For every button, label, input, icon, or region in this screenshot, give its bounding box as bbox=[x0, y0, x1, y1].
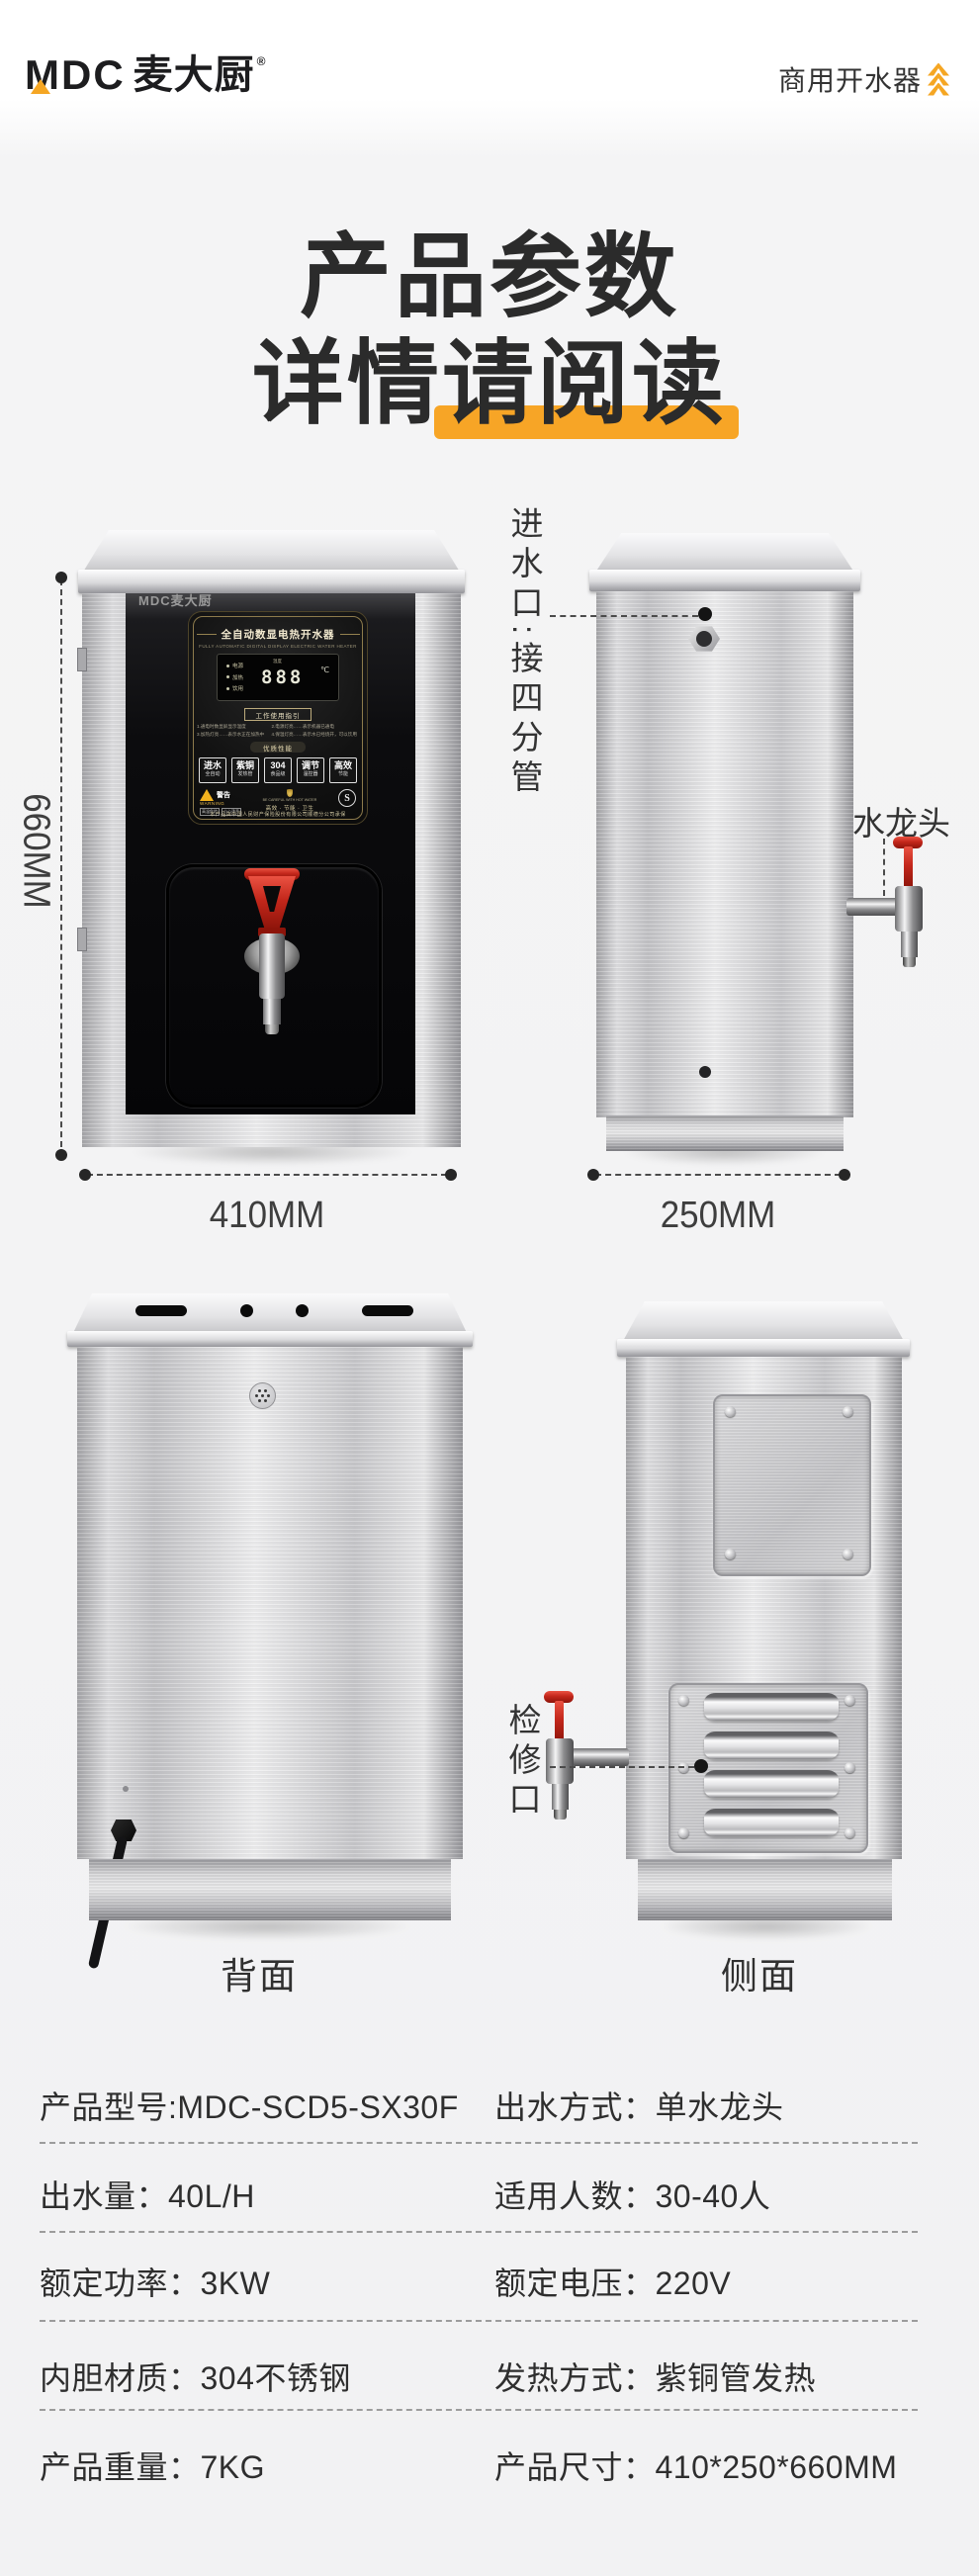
front-faucet-body bbox=[259, 933, 285, 999]
display-temp-label: 温度 bbox=[273, 659, 282, 665]
spec-liner: 内胆材质：304不锈钢 bbox=[40, 2354, 351, 2399]
inlet-leader-line bbox=[550, 615, 698, 617]
front-panel-brand-strip: MDC麦大厨 bbox=[138, 590, 247, 608]
indicator-list: 电源 加热 饮用 bbox=[226, 662, 243, 692]
screw-icon bbox=[845, 1827, 855, 1838]
spec-voltage: 额定电压：220V bbox=[494, 2259, 731, 2304]
front-unit-top-cap bbox=[82, 530, 461, 574]
spec-power: 额定功率：3KW bbox=[40, 2259, 270, 2304]
back-unit-top-lip bbox=[67, 1331, 473, 1347]
display-digits: 888 bbox=[261, 666, 304, 688]
spec-separator bbox=[40, 2409, 918, 2411]
front-width-dim-line bbox=[87, 1174, 447, 1176]
spec-separator bbox=[40, 2142, 918, 2144]
feature-badge: 进水全自动 bbox=[199, 757, 226, 783]
warning-label-en: WARNING bbox=[200, 801, 241, 806]
side2-base bbox=[638, 1859, 892, 1920]
side-unit-top-lip bbox=[589, 570, 860, 591]
screw-icon bbox=[843, 1549, 853, 1559]
louver-slat bbox=[704, 1809, 839, 1836]
side-faucet-arm bbox=[846, 898, 898, 916]
indicator-drink: 饮用 bbox=[226, 684, 243, 692]
indicator-heating: 加热 bbox=[226, 673, 243, 681]
control-panel-subtitle: FULLY AUTOMATIC DIGITAL DISPLAY ELECTRIC… bbox=[189, 644, 367, 649]
feature-badges: 进水全自动 紫铜发热管 304食品级 调节温控器 高效节能 bbox=[189, 757, 367, 783]
side-width-dot-left bbox=[587, 1169, 599, 1181]
side-width-dot-right bbox=[839, 1169, 850, 1181]
page-title-line2: 详情请阅读 bbox=[0, 334, 979, 433]
feature-badge: 高效节能 bbox=[329, 757, 357, 783]
back-unit-body bbox=[77, 1347, 463, 1859]
screw-icon bbox=[845, 1695, 855, 1706]
back-unit-base bbox=[89, 1859, 451, 1920]
side2-faucet-tip bbox=[554, 1810, 567, 1820]
warning-center: BE CAREFUL WITH HOT WATER 高效 · 节能 · 卫生 bbox=[262, 789, 317, 812]
inlet-hex-center bbox=[696, 631, 712, 647]
back-cap-slot-right bbox=[362, 1305, 413, 1316]
height-dim-dot-bottom bbox=[55, 1149, 67, 1161]
screw-icon bbox=[845, 1762, 855, 1773]
indicator-power: 电源 bbox=[226, 662, 243, 669]
louver-slat bbox=[704, 1693, 839, 1721]
title-line2-prefix: 详情 bbox=[252, 332, 442, 435]
back-cap-hole-left bbox=[240, 1304, 253, 1317]
louver-slat bbox=[704, 1732, 839, 1759]
guide-item: 1.通电时数显屏显示温度 bbox=[197, 724, 271, 730]
vent-holes bbox=[261, 1394, 264, 1397]
warning-label-cn: 警告 bbox=[217, 790, 230, 800]
brand-triangle-icon bbox=[31, 79, 50, 94]
control-panel-title-row: 全自动数显电热开水器 bbox=[189, 627, 367, 642]
brand-registered-mark: ® bbox=[257, 55, 266, 67]
inlet-annotation: 进水口:接四分管 bbox=[506, 506, 542, 833]
front-unit-left-hinge-2 bbox=[77, 928, 87, 951]
feature-badge: 紫铜发热管 bbox=[231, 757, 259, 783]
side-unit-base bbox=[606, 1115, 844, 1151]
screw-icon bbox=[843, 1406, 853, 1417]
spec-separator bbox=[40, 2320, 918, 2322]
spec-separator bbox=[40, 2231, 918, 2233]
front-width-dot-right bbox=[445, 1169, 457, 1181]
warning-center-en: BE CAREFUL WITH HOT WATER bbox=[262, 798, 317, 802]
back-screw-dot bbox=[123, 1786, 129, 1792]
side2-top-lip bbox=[617, 1339, 910, 1357]
usage-guide-title: 工作使用指引 bbox=[244, 708, 311, 721]
spec-heating: 发热方式：紫铜管发热 bbox=[494, 2354, 816, 2399]
faucet-annotation: 水龙头 bbox=[852, 797, 979, 844]
height-dim-dot-top bbox=[55, 572, 67, 583]
control-panel-title: 全自动数显电热开水器 bbox=[222, 627, 335, 642]
spec-weight: 产品重量：7KG bbox=[40, 2443, 265, 2488]
side2-faucet-arm bbox=[572, 1748, 629, 1766]
side-unit-lower-hole bbox=[699, 1066, 711, 1078]
quality-cert-icon: S bbox=[338, 789, 356, 807]
screw-icon bbox=[678, 1827, 689, 1838]
height-dim-label: 660MM bbox=[15, 787, 57, 915]
page-title-line1: 产品参数 bbox=[0, 227, 979, 326]
indicator-dot bbox=[226, 675, 229, 678]
spec-outlet-type: 出水方式：单水龙头 bbox=[494, 2083, 784, 2128]
front-width-dot-left bbox=[79, 1169, 91, 1181]
service-annotation: 检修口 bbox=[504, 1703, 540, 1861]
side-faucet-handle-stem bbox=[904, 846, 913, 888]
title-line2-highlight: 请阅读 bbox=[442, 334, 727, 433]
insurance-note: 本产品由中国人民财产保险股份有限公司顺德分公司承保 bbox=[189, 811, 367, 818]
water-inlet-hole bbox=[698, 607, 712, 621]
control-panel: 全自动数显电热开水器 FULLY AUTOMATIC DIGITAL DISPL… bbox=[188, 611, 368, 825]
back-vent-circle bbox=[249, 1382, 276, 1409]
hot-water-drop-icon bbox=[287, 789, 293, 797]
service-leader-dot bbox=[694, 1759, 708, 1773]
gold-line-right bbox=[340, 634, 360, 635]
side-faucet-tip bbox=[903, 957, 916, 967]
guide-item: 4.保温灯亮……表示水已经烧开，可以饮用 bbox=[271, 732, 359, 738]
side-faucet-spout bbox=[901, 932, 918, 957]
indicator-dot bbox=[226, 665, 229, 667]
front-faucet-tip bbox=[265, 1024, 279, 1034]
front-faucet-spout bbox=[263, 999, 281, 1024]
product-detail-page: MDC 麦大厨 ® 商用开水器 产品参数 详情请阅读 MDC麦大厨 全自动数显电… bbox=[0, 0, 979, 2576]
spec-output: 出水量：40L/H bbox=[40, 2172, 255, 2217]
side-width-label: 250MM bbox=[627, 1195, 809, 1237]
brand-logo-mdc: MDC bbox=[25, 55, 126, 95]
faucet-leader-line bbox=[883, 839, 885, 896]
side-faucet-body bbox=[895, 886, 923, 932]
side2-top-cap bbox=[622, 1301, 905, 1343]
side-width-dim-line bbox=[595, 1174, 841, 1176]
height-dim-line bbox=[60, 579, 62, 1157]
warning-triangle-icon bbox=[200, 789, 214, 801]
screw-icon bbox=[725, 1406, 736, 1417]
back-cap-hole-right bbox=[296, 1304, 309, 1317]
spec-model: 产品型号:MDC-SCD5-SX30F bbox=[40, 2083, 459, 2128]
brand-logo: MDC 麦大厨 ® bbox=[25, 55, 266, 95]
spec-people: 适用人数：30-40人 bbox=[494, 2172, 770, 2217]
usage-guide-list: 1.通电时数显屏显示温度 2.电源灯亮……表示机器已通电 3.加热灯亮……表示水… bbox=[189, 724, 367, 738]
feature-badge: 304食品级 bbox=[264, 757, 292, 783]
side-unit-top-cap bbox=[595, 533, 854, 573]
side-view-label: 侧面 bbox=[661, 1946, 858, 1999]
side2-faucet-spout bbox=[552, 1784, 569, 1810]
indicator-dot bbox=[226, 687, 229, 690]
triple-chevron-up-icon bbox=[928, 66, 949, 93]
side-unit-body bbox=[596, 591, 853, 1117]
front-width-label: 410MM bbox=[176, 1195, 358, 1237]
side2-faucet-body bbox=[546, 1738, 574, 1784]
category-label: 商用开水器 bbox=[778, 59, 922, 99]
display-unit: ℃ bbox=[320, 666, 329, 674]
feature-badge: 调节温控器 bbox=[297, 757, 324, 783]
front-unit-top-lip bbox=[78, 570, 465, 593]
guide-item: 2.电源灯亮……表示机器已通电 bbox=[271, 724, 359, 730]
louver-slat bbox=[704, 1770, 839, 1798]
back-view-label: 背面 bbox=[160, 1946, 358, 1999]
brand-logo-cn: 麦大厨 bbox=[133, 55, 255, 95]
temperature-display: 电源 加热 饮用 温度 888 ℃ bbox=[217, 654, 339, 701]
service-leader-line bbox=[550, 1766, 704, 1768]
side2-faucet-handle-stem bbox=[555, 1701, 564, 1742]
front-unit-left-hinge bbox=[77, 648, 87, 671]
header-category: 商用开水器 bbox=[778, 59, 949, 99]
features-title: 优质性能 bbox=[250, 742, 306, 753]
gold-line-left bbox=[197, 634, 217, 635]
spec-size: 产品尺寸：410*250*660MM bbox=[494, 2443, 897, 2488]
guide-item: 3.加热灯亮……表示水正在加热中 bbox=[197, 732, 271, 738]
screw-icon bbox=[725, 1549, 736, 1559]
screw-icon bbox=[678, 1695, 689, 1706]
back-cap-slot-left bbox=[135, 1305, 187, 1316]
